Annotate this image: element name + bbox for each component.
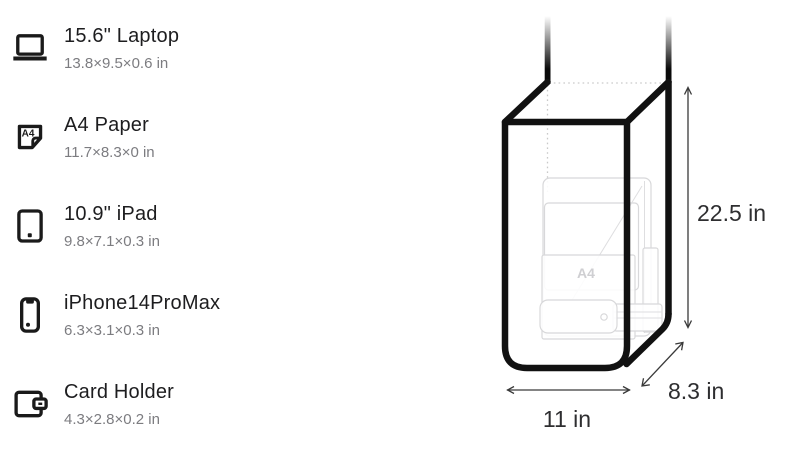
item-title: iPhone14ProMax xyxy=(64,291,220,315)
fit-items-list: 15.6" Laptop 13.8×9.5×0.6 in A4 A4 Paper… xyxy=(10,22,220,430)
item-dimensions: 6.3×3.1×0.3 in xyxy=(64,322,220,340)
item-title: 10.9" iPad xyxy=(64,202,160,226)
list-item: 15.6" Laptop 13.8×9.5×0.6 in xyxy=(10,22,220,74)
item-title: A4 Paper xyxy=(64,113,155,137)
height-arrow xyxy=(685,88,692,328)
depth-label: 8.3 in xyxy=(668,378,724,404)
a4-watermark: A4 xyxy=(577,265,595,281)
ipad-icon xyxy=(10,206,50,246)
item-dimensions: 13.8×9.5×0.6 in xyxy=(64,55,179,73)
item-dimensions: 11.7×8.3×0 in xyxy=(64,144,155,162)
card-holder-icon xyxy=(10,384,50,424)
a4-icon-label: A4 xyxy=(22,128,35,139)
list-item: 10.9" iPad 9.8×7.1×0.3 in xyxy=(10,200,220,252)
item-title: Card Holder xyxy=(64,380,174,404)
page: 15.6" Laptop 13.8×9.5×0.6 in A4 A4 Paper… xyxy=(0,0,800,455)
width-arrow xyxy=(507,387,630,394)
laptop-icon xyxy=(10,28,50,68)
list-item: iPhone14ProMax 6.3×3.1×0.3 in xyxy=(10,289,220,341)
list-item: A4 A4 Paper 11.7×8.3×0 in xyxy=(10,111,220,163)
a4-paper-icon: A4 xyxy=(10,117,50,157)
height-label: 22.5 in xyxy=(697,200,766,226)
iphone-icon xyxy=(10,295,50,335)
ghost-items: A4 xyxy=(540,178,662,339)
item-dimensions: 4.3×2.8×0.2 in xyxy=(64,411,174,429)
item-title: 15.6" Laptop xyxy=(64,24,179,48)
ghost-phone xyxy=(540,300,617,333)
bag-straps xyxy=(545,16,672,84)
list-item: Card Holder 4.3×2.8×0.2 in xyxy=(10,378,220,430)
item-dimensions: 9.8×7.1×0.3 in xyxy=(64,233,160,251)
bag-diagram: A4 xyxy=(430,0,800,455)
width-label: 11 in xyxy=(543,406,591,432)
